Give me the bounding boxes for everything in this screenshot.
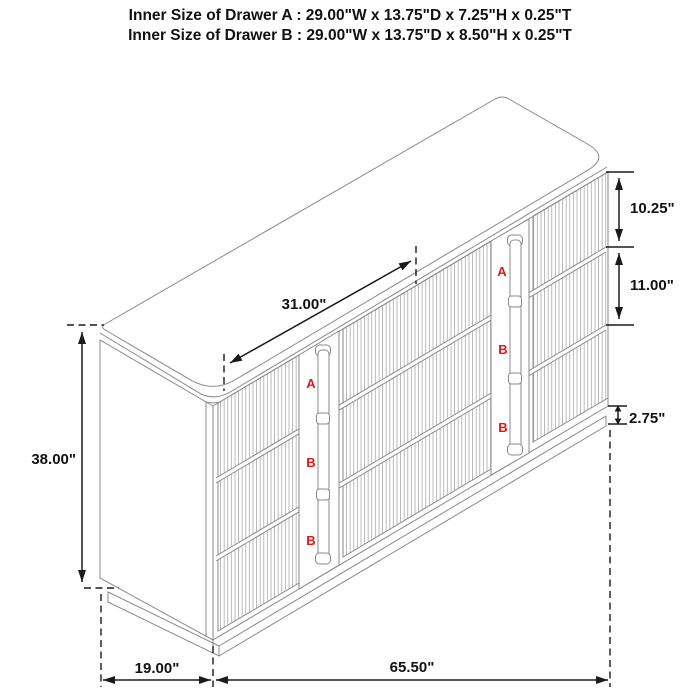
sideboard-drawing: A B B A B B 31.00" 38.00" 10 <box>0 0 700 700</box>
dim-right-drawers: 10.25" 11.00" <box>606 172 675 325</box>
dim-label-65-50: 65.50" <box>390 659 435 676</box>
fluted-panel-left <box>218 355 299 631</box>
dim-label-10-25: 10.25" <box>630 200 675 217</box>
dim-label-11: 11.00" <box>630 277 674 294</box>
drawer-handle-right <box>508 235 523 455</box>
drawer-label-left-b1: B <box>306 455 315 470</box>
dim-label-38: 38.00" <box>31 451 76 468</box>
drawer-handle-left <box>316 345 331 564</box>
drawer-label-left-b2: B <box>306 533 315 548</box>
drawer-label-left-a: A <box>306 376 316 391</box>
dim-label-31: 31.00" <box>282 296 327 313</box>
fluted-panel-right <box>533 172 608 442</box>
dim-label-19: 19.00" <box>135 660 180 677</box>
cabinet-left-side <box>100 340 213 640</box>
dim-label-2-75: 2.75" <box>629 410 665 427</box>
drawer-label-right-a: A <box>497 264 507 279</box>
cabinet <box>100 97 608 656</box>
drawer-label-right-b2: B <box>498 420 507 435</box>
dim-base-height: 2.75" <box>608 405 665 427</box>
drawer-label-right-b1: B <box>498 342 507 357</box>
dimension-diagram: Inner Size of Drawer A : 29.00"W x 13.75… <box>0 0 700 700</box>
